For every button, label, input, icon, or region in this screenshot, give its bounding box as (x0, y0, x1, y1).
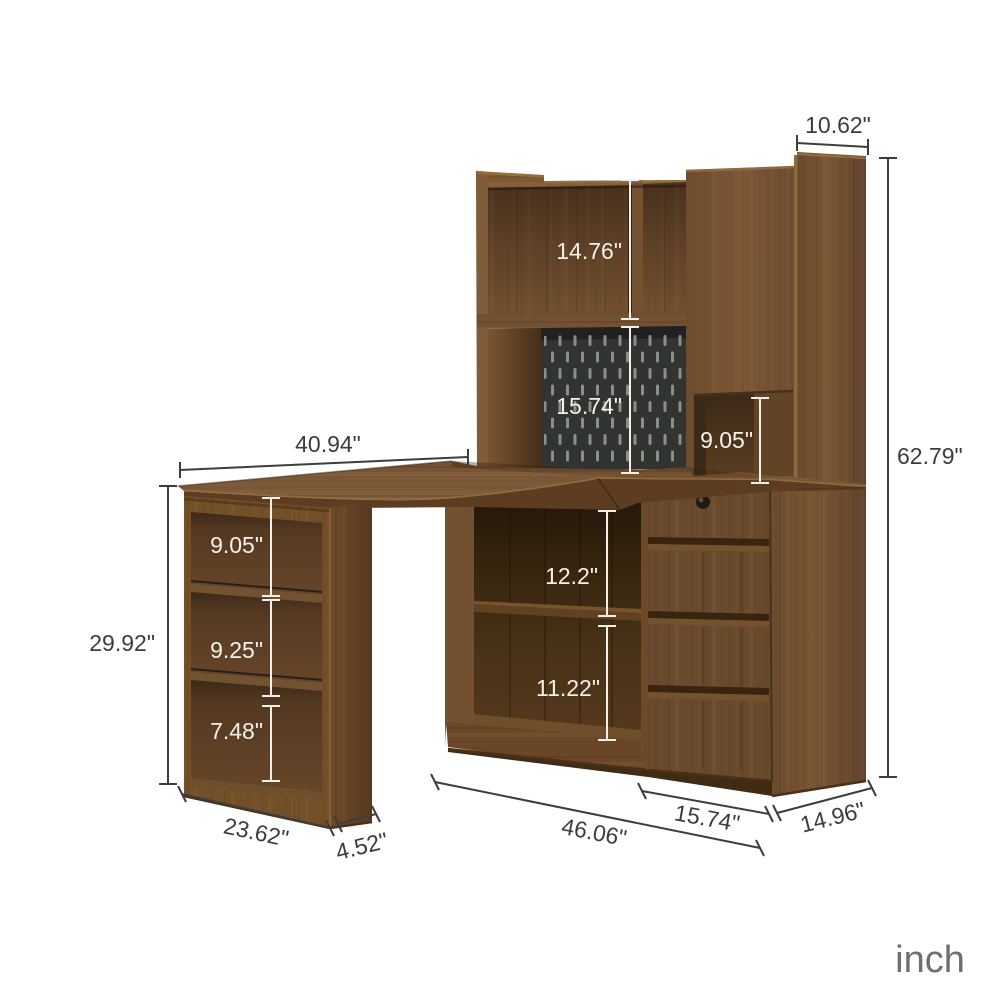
svg-text:10.62": 10.62" (805, 112, 871, 138)
svg-text:11.22": 11.22" (536, 675, 600, 701)
svg-text:inch: inch (895, 939, 965, 981)
svg-text:9.05": 9.05" (700, 427, 753, 453)
svg-text:12.2": 12.2" (545, 563, 598, 589)
svg-text:29.92": 29.92" (89, 630, 155, 656)
svg-text:62.79": 62.79" (897, 443, 963, 469)
svg-text:7.48": 7.48" (210, 718, 263, 744)
svg-text:9.05": 9.05" (210, 532, 263, 558)
svg-text:40.94": 40.94" (295, 431, 361, 457)
svg-text:14.76": 14.76" (556, 238, 622, 264)
svg-text:9.25": 9.25" (210, 637, 263, 663)
svg-text:15.74": 15.74" (556, 393, 622, 419)
